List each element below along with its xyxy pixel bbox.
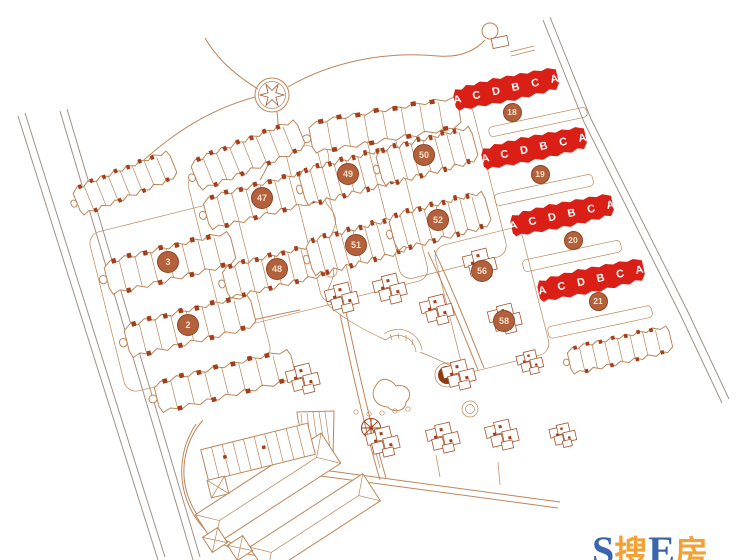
cul-de-sac xyxy=(482,23,498,39)
watermark-part: E xyxy=(648,528,675,560)
roundabout-icon xyxy=(255,78,289,112)
site-plan: A C D B C AA C D B C AA C D B C AA C D B… xyxy=(0,0,750,560)
watermark-part: 房 xyxy=(675,536,709,560)
watermark-part: S xyxy=(592,528,614,560)
watermark: S搜E房 xyxy=(592,529,709,560)
site-plan-drawing xyxy=(0,0,750,560)
pond xyxy=(373,379,409,410)
bridge xyxy=(384,329,422,352)
buildings-layer xyxy=(65,94,674,560)
watermark-part: 搜 xyxy=(614,536,648,560)
